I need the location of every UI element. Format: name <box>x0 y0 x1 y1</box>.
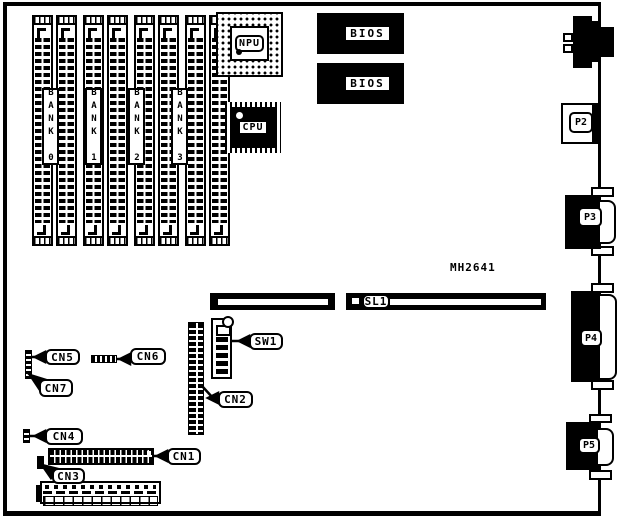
slot-latch-icon <box>187 25 204 38</box>
cpu-label: CPU <box>239 121 266 134</box>
sw1-switch-rows <box>216 337 228 375</box>
sw1-circle-icon <box>222 316 234 328</box>
slot-bar-left-stripe <box>218 299 328 305</box>
cpu-chip-body: CPU <box>230 107 276 148</box>
cn3-label: CN3 <box>52 468 85 484</box>
p4-dsub-face <box>600 294 617 380</box>
cn6-label: CN6 <box>130 348 166 365</box>
slot-tabs <box>109 236 126 244</box>
p5-dsub-face <box>598 428 614 466</box>
slot-tabs <box>58 236 75 244</box>
slot-latch-icon <box>58 223 75 236</box>
cn3-component <box>37 456 44 469</box>
board-code: MH2641 <box>450 261 496 274</box>
cpu-chip: CPU <box>225 102 281 153</box>
slot-tabs <box>187 236 204 244</box>
bank-label-1: BANK 1 <box>85 88 102 165</box>
slot-latch-icon <box>136 223 153 236</box>
cn1-label: CN1 <box>167 448 201 465</box>
connector-key-bar <box>36 485 41 502</box>
slot-tabs <box>160 17 177 25</box>
bank-label-0: BANK 0 <box>42 88 59 165</box>
sw1-dip-switch <box>211 318 232 379</box>
slot-latch-icon <box>34 25 51 38</box>
slot-latch-icon <box>136 25 153 38</box>
slot-latch-icon <box>160 223 177 236</box>
cn1-connector <box>48 448 154 465</box>
bank-label-2: BANK 2 <box>128 88 145 165</box>
slot-contacts <box>188 38 203 223</box>
pin1-dot-icon <box>236 112 243 119</box>
pin1-dot-icon <box>236 49 242 55</box>
connector-cells <box>43 496 158 506</box>
slot-tabs <box>211 236 228 244</box>
din-pin <box>563 44 573 53</box>
sl1-pin-mark <box>352 298 359 304</box>
slot-latch-icon <box>211 223 228 236</box>
p4-label: P4 <box>580 329 602 347</box>
simm-slot <box>185 15 206 246</box>
slot-latch-icon <box>58 25 75 38</box>
slot-latch-icon <box>109 223 126 236</box>
slot-tabs <box>34 236 51 244</box>
p5-label: P5 <box>578 437 600 454</box>
cn7-label: CN7 <box>39 379 73 397</box>
cn4-label: CN4 <box>45 428 83 445</box>
sl1-label: SL1 <box>362 294 390 309</box>
slot-latch-icon <box>109 25 126 38</box>
bios-chip-top: BIOS <box>317 13 404 54</box>
bank-label-3: BANK 3 <box>171 88 188 165</box>
p2-label: P2 <box>569 112 593 133</box>
connector-pin-dots <box>45 485 156 489</box>
slot-latch-icon <box>85 223 102 236</box>
bios-label: BIOS <box>346 77 389 90</box>
slot-tabs <box>34 17 51 25</box>
slot-tabs <box>58 17 75 25</box>
slot-tabs <box>136 236 153 244</box>
cn2-header <box>188 322 204 435</box>
cn6-header <box>91 355 117 363</box>
simm-slot <box>107 15 128 246</box>
sw1-label: SW1 <box>249 333 283 350</box>
cn5-header <box>25 350 32 379</box>
connector-dash-line <box>43 491 158 494</box>
p3-dsub-face <box>600 200 616 244</box>
slot-tabs <box>187 17 204 25</box>
npu-chip-body: NPU <box>230 26 269 61</box>
simm-slot <box>56 15 77 246</box>
slot-latch-icon <box>160 25 177 38</box>
p3-label: P3 <box>578 207 602 227</box>
slot-latch-icon <box>187 223 204 236</box>
p5-mount-tab <box>589 470 612 480</box>
motherboard-diagram: BANK 0 BANK 1 BANK 2 BANK 3 NPU CPU BIOS… <box>0 0 619 520</box>
slot-tabs <box>136 17 153 25</box>
din-pin <box>563 33 573 42</box>
cn4-header <box>23 429 30 443</box>
slot-latch-icon <box>34 223 51 236</box>
slot-tabs <box>160 236 177 244</box>
slot-contacts <box>59 38 74 223</box>
slot-contacts <box>110 38 125 223</box>
cn2-label: CN2 <box>218 391 253 408</box>
keyboard-din-connector <box>566 16 614 69</box>
bios-label: BIOS <box>346 27 389 40</box>
slot-latch-icon <box>85 25 102 38</box>
slot-tabs <box>85 236 102 244</box>
npu-chip: NPU <box>216 12 283 77</box>
bottom-edge-connector <box>40 481 161 504</box>
slot-tabs <box>85 17 102 25</box>
slot-tabs <box>109 17 126 25</box>
bios-chip-bottom: BIOS <box>317 63 404 104</box>
cn5-label: CN5 <box>45 349 80 365</box>
cn1-pin1-mark <box>147 451 151 456</box>
sl1-slot-stripe <box>390 299 541 305</box>
p2-edge <box>592 105 599 142</box>
